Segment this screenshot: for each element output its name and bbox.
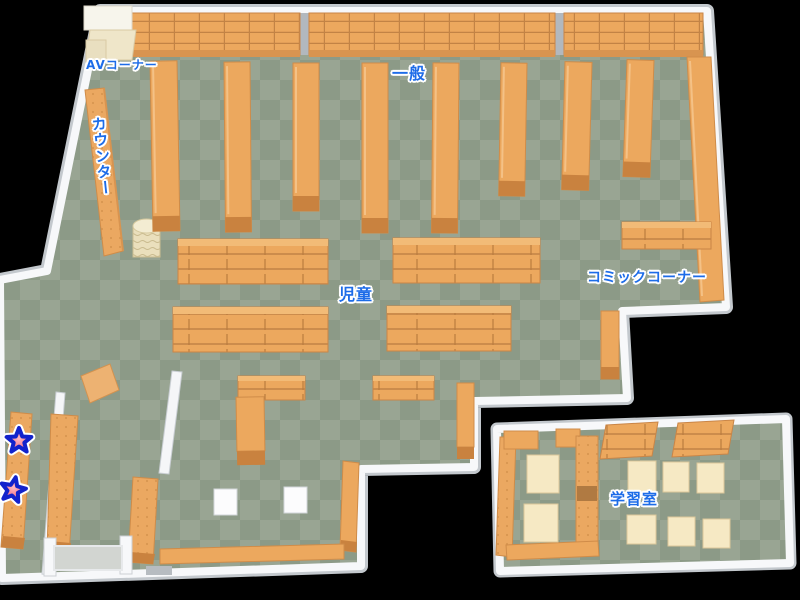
- floor-map-canvas: [0, 0, 800, 600]
- general-bookshelf: [362, 63, 388, 233]
- study-table: [524, 504, 558, 542]
- children-low-shelf: [238, 376, 305, 400]
- comic-shelf: [601, 311, 619, 379]
- children-low-shelf: [178, 239, 328, 284]
- display-box: [214, 489, 237, 515]
- study-table: [627, 515, 656, 544]
- window-gap: [299, 13, 310, 55]
- general-bookshelf: [224, 62, 251, 232]
- general-bookshelf: [432, 63, 459, 233]
- study-table: [527, 455, 559, 493]
- children-low-shelf: [373, 376, 434, 400]
- study-divider-shelf: [576, 436, 598, 548]
- study-room: [496, 419, 790, 571]
- study-table: [628, 461, 656, 492]
- study-wall-shelf: [496, 437, 516, 557]
- study-table: [668, 517, 695, 546]
- study-table: [697, 463, 724, 493]
- study-table: [703, 519, 730, 548]
- comic-shelf: [622, 222, 711, 249]
- children-low-shelf: [173, 307, 328, 352]
- bookshelf: [340, 461, 359, 552]
- library-floor-map: AVコーナー カウンター 一般 児童 コミックコーナー 学習室: [0, 0, 800, 600]
- general-bookshelf: [150, 61, 180, 231]
- study-table: [663, 462, 689, 492]
- general-bookshelf: [293, 63, 319, 211]
- study-shelf: [504, 431, 538, 449]
- general-bookshelf: [499, 63, 527, 196]
- display-box: [284, 487, 307, 513]
- bookshelf: [236, 397, 265, 465]
- children-low-shelf: [393, 238, 540, 283]
- general-bookshelf: [623, 60, 654, 178]
- general-bookshelf: [562, 62, 592, 191]
- av-corner-shelves: [84, 6, 136, 62]
- bookshelf: [457, 383, 474, 459]
- top-wall-shelves: [122, 13, 703, 57]
- children-low-shelf: [387, 306, 511, 351]
